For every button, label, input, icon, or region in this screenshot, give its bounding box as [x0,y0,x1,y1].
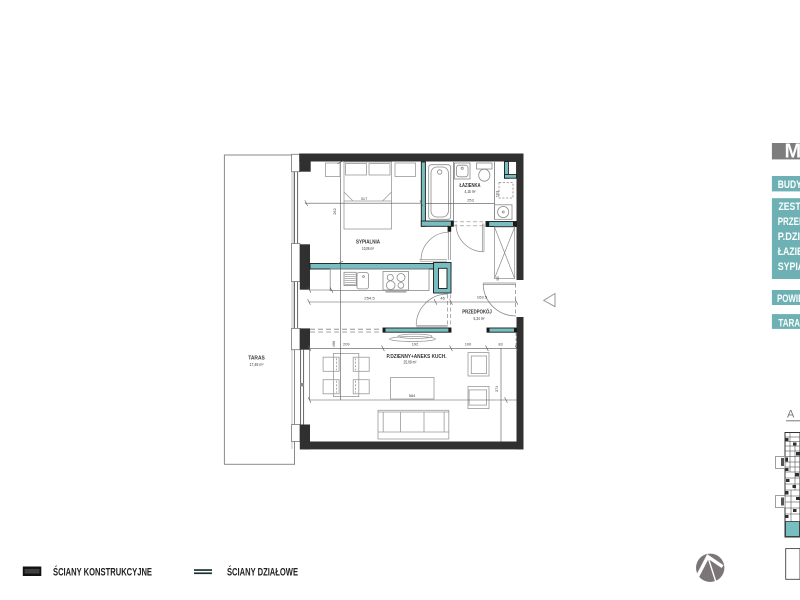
svg-text:192: 192 [412,341,419,346]
svg-text:ŚCIANY DZIAŁOWE: ŚCIANY DZIAŁOWE [227,565,298,578]
svg-text:374: 374 [494,385,499,392]
svg-text:209: 209 [343,341,350,346]
svg-text:SYPIALNIA: SYPIALNIA [356,240,380,246]
svg-text:163.5: 163.5 [477,295,488,300]
svg-text:262: 262 [332,208,337,215]
svg-text:A: A [787,409,795,421]
svg-text:POWIERZCHNIA: POWIERZCHNIA [777,293,800,305]
svg-text:P.DZIENNY: P.DZIENNY [778,231,800,243]
svg-text:10,06 m²: 10,06 m² [362,246,374,251]
svg-text:253: 253 [467,198,474,203]
svg-text:100: 100 [465,341,472,346]
svg-text:PRZEDPOKÓJ: PRZEDPOKÓJ [778,215,800,228]
svg-text:4,15 m²: 4,15 m² [465,189,476,194]
svg-text:M: M [785,141,800,163]
svg-text:46: 46 [440,295,444,300]
svg-text:496: 496 [331,341,336,348]
svg-text:ZESTAWIENIE: ZESTAWIENIE [779,201,800,213]
svg-text:254.5: 254.5 [364,295,375,300]
svg-text:17,48 m²: 17,48 m² [250,362,265,367]
svg-text:25,09 m²: 25,09 m² [404,360,417,365]
svg-text:584: 584 [409,393,416,398]
svg-text:TARAS: TARAS [248,356,265,362]
svg-text:TARAS: TARAS [778,317,800,329]
svg-text:ŁAZIENKA: ŁAZIENKA [778,246,800,258]
svg-text:PRZEDPOKÓJ: PRZEDPOKÓJ [462,308,492,316]
svg-text:83: 83 [498,342,502,347]
svg-text:BUDYNEK: BUDYNEK [778,179,800,191]
svg-text:95: 95 [495,276,500,280]
svg-text:ŚCIANY KONSTRUKCYJNE: ŚCIANY KONSTRUKCYJNE [53,565,152,578]
svg-text:103: 103 [494,191,499,198]
svg-text:P.DZIENNY+ANEKS KUCH.: P.DZIENNY+ANEKS KUCH. [387,354,448,360]
svg-text:5,34 m²: 5,34 m² [474,316,485,321]
svg-text:317: 317 [361,196,368,201]
svg-text:SYPIALNIA: SYPIALNIA [778,261,800,273]
